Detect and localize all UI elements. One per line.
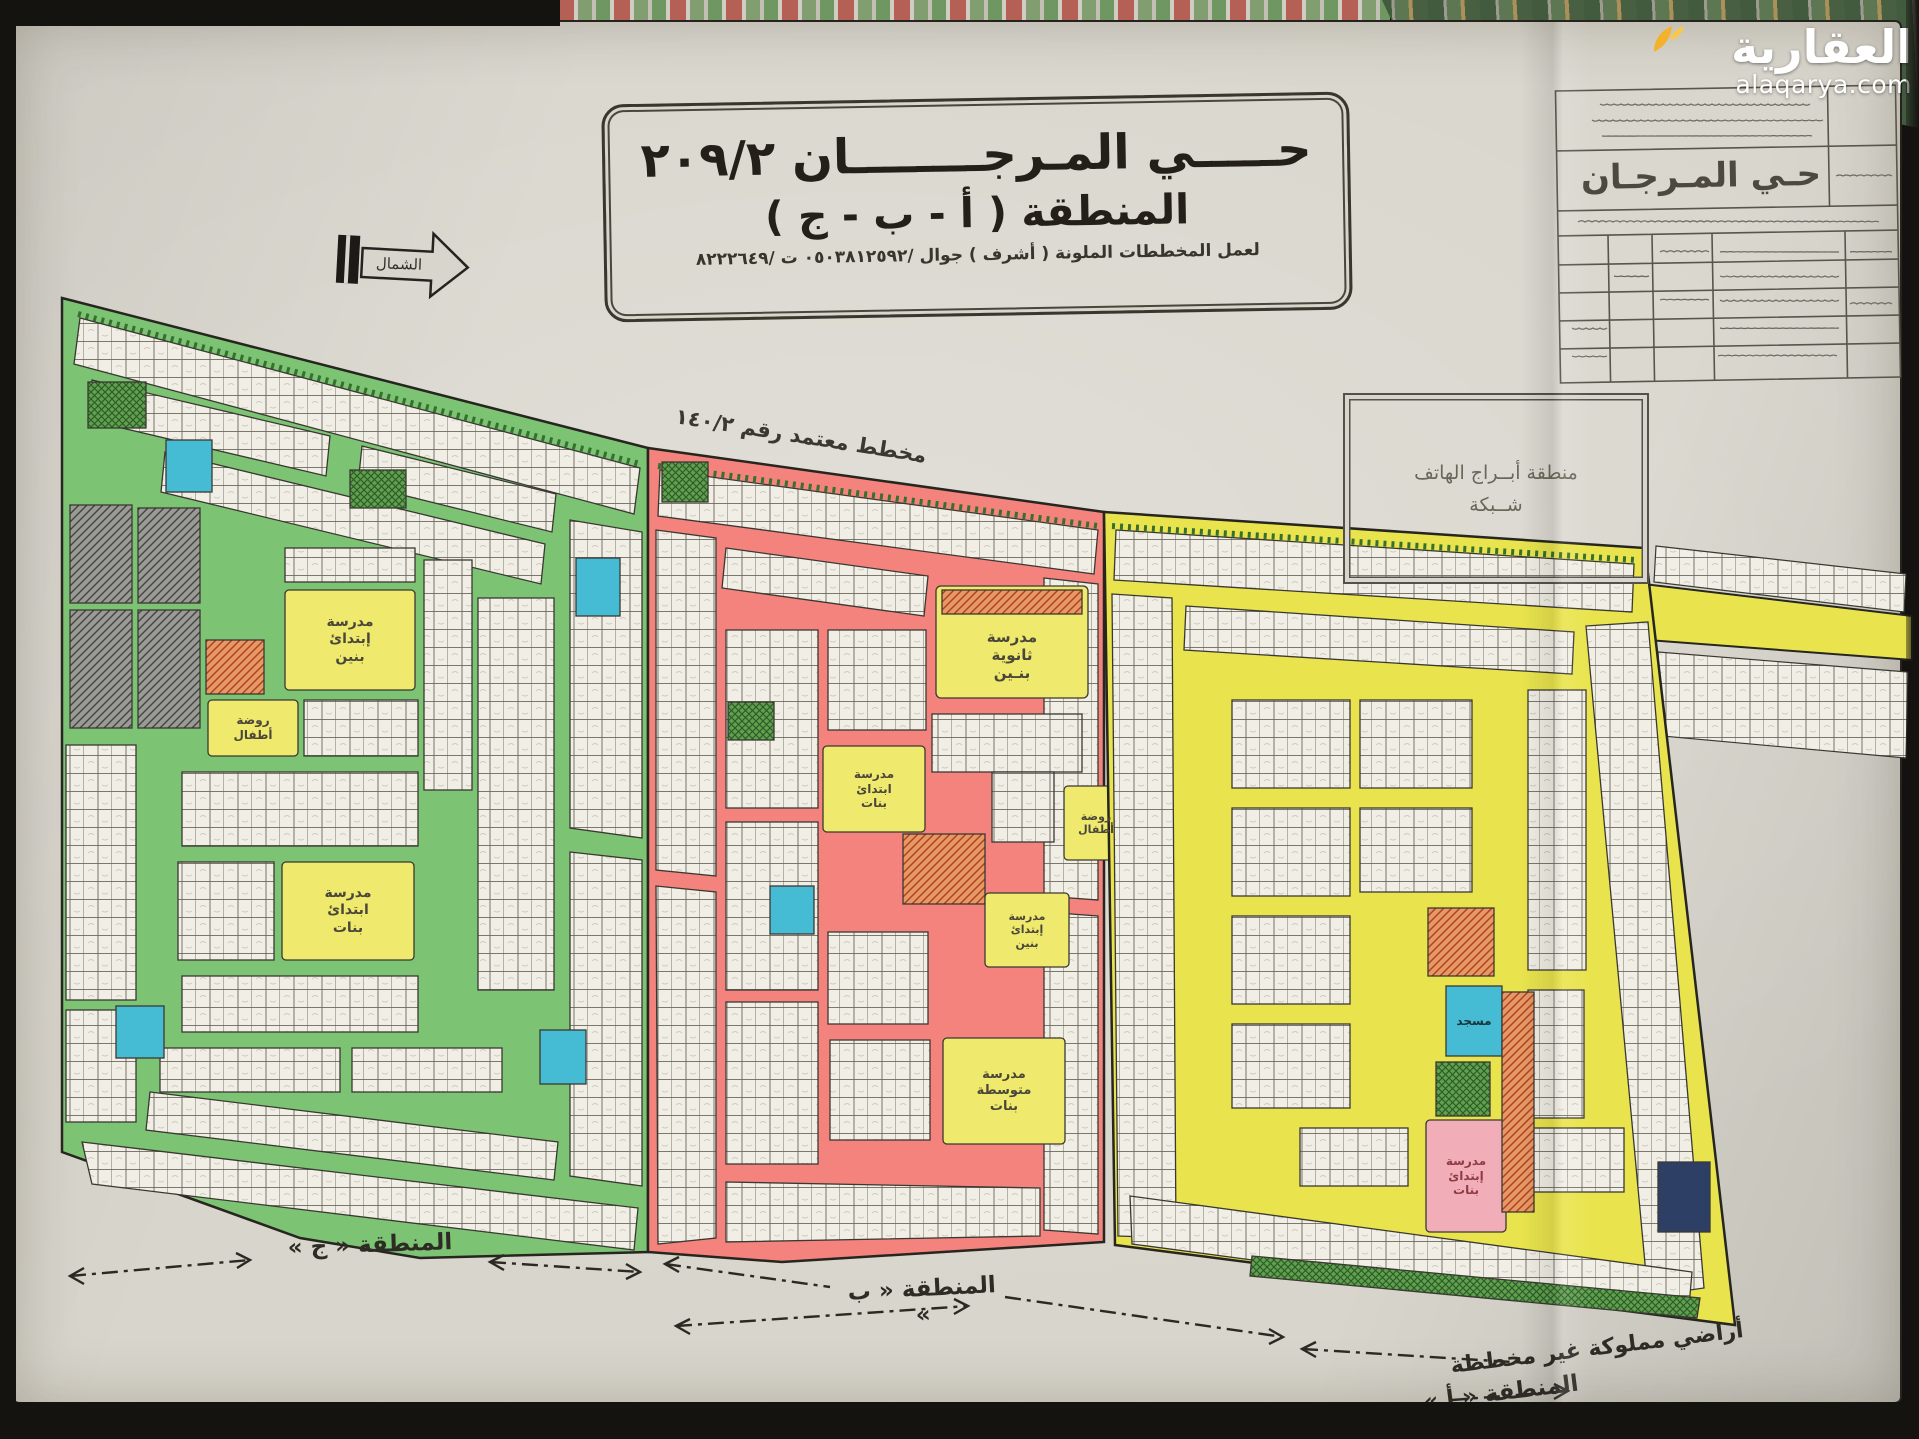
zone-b-label: المنطقة « ب » [839,1272,1006,1333]
mosque-parcel [206,640,264,694]
school-label: مدرسة ثانوية بنـين [936,612,1088,698]
plot-block [830,1040,930,1140]
park-parcel [350,470,406,508]
watermark: العقارية alaqarya.com [1668,24,1912,124]
school-yard [942,590,1082,614]
school-label: مدرسة إبتدائ بنات [1426,1120,1506,1232]
plot-block [1658,652,1908,758]
photographed-plan: حـــــي المـرجــــــــان ٢٠٩/٢ المنطقة (… [0,0,1919,1439]
plot-block [828,932,928,1024]
plot-block [1300,1128,1408,1186]
zone-a-yellow [1104,512,1912,1325]
plot-block [570,852,642,1186]
plot-block [1360,808,1472,892]
kindergarten-label: روضة أطفال [208,700,298,756]
plan-subtitle: المنطقة ( أ - ب - ج ) [606,183,1349,244]
plot-block [478,598,554,990]
school-label: مدرسة إبتدائ بنين [285,590,415,690]
plot-block [932,714,1082,772]
school-label: مدرسة متوسطة بنات [943,1038,1065,1144]
plot-block [182,772,418,846]
plot-block [352,1048,502,1092]
plot-block [1360,700,1472,788]
title-block-project-name: حـي المـرجـان [1574,144,1827,208]
plot-block [1232,808,1350,896]
photo-frame [0,1402,1919,1439]
plot-block [424,560,472,790]
school-label: مدرسة ابتدائ بنات [823,746,925,832]
park-parcel [88,382,146,428]
plot-block [285,548,415,582]
plot-block [1112,594,1176,1238]
plot-block [1232,916,1350,1004]
plot-block [726,1002,818,1164]
school-label: مدرسة ابتدائ بنات [282,862,414,960]
plot-block [178,862,274,960]
plot-block [828,630,926,730]
photo-frame [0,0,16,1439]
reserved-parcel [70,505,132,603]
plot-block [304,700,418,756]
kindergarten-label: روضة أطفال [1064,786,1128,860]
plan-contact: لعمل المخططات الملونة ( أشرف ) جوال /٠٥٠… [607,239,1349,272]
plot-block [182,976,418,1032]
school-label: مدرسة إبتدائ بنين [985,893,1069,967]
mosque-parcel [540,1030,586,1084]
title-box: حـــــي المـرجــــــــان ٢٠٩/٢ المنطقة (… [601,91,1353,322]
park-parcel [728,702,774,740]
plot-block [1232,1024,1350,1108]
mosque-parcel [903,834,985,904]
reserved-parcel [1428,908,1494,976]
park-parcel [1436,1062,1490,1116]
plan-title: حـــــي المـرجــــــــان ٢٠٩/٢ [605,121,1348,190]
north-label: الشمال [366,254,433,274]
plot-block [656,886,716,1244]
plot-block [656,530,716,876]
photo-frame [1906,0,1919,1439]
reserved-parcel [138,508,200,603]
paper-crease [1520,22,1592,1402]
leaf-icon [1650,22,1686,56]
plot-block [992,772,1054,842]
reserved-parcel [70,610,132,728]
plot-block [66,745,136,1000]
reserved-parcel [138,610,200,728]
brand-domain: alaqarya.com [1668,70,1912,99]
park-parcel [662,462,708,502]
phone-towers-line2: شــبكة [1469,494,1522,516]
plot-block [726,1182,1040,1242]
plot-block [160,1048,340,1092]
phone-towers-box: منطقة أبــراج الهاتف شــبكة [1343,393,1649,584]
mosque-parcel [770,886,814,934]
photo-frame [0,0,560,26]
title-block-table [1555,85,1900,383]
utility-parcel [1658,1162,1710,1232]
mosque-parcel [166,440,212,492]
zone-c-green [62,298,648,1258]
mosque-label: مسجد [1446,986,1502,1056]
plot-block [1232,700,1350,788]
mosque-parcel [116,1006,164,1058]
mosque-parcel [576,558,620,616]
brand-name: العقارية [1668,24,1912,70]
